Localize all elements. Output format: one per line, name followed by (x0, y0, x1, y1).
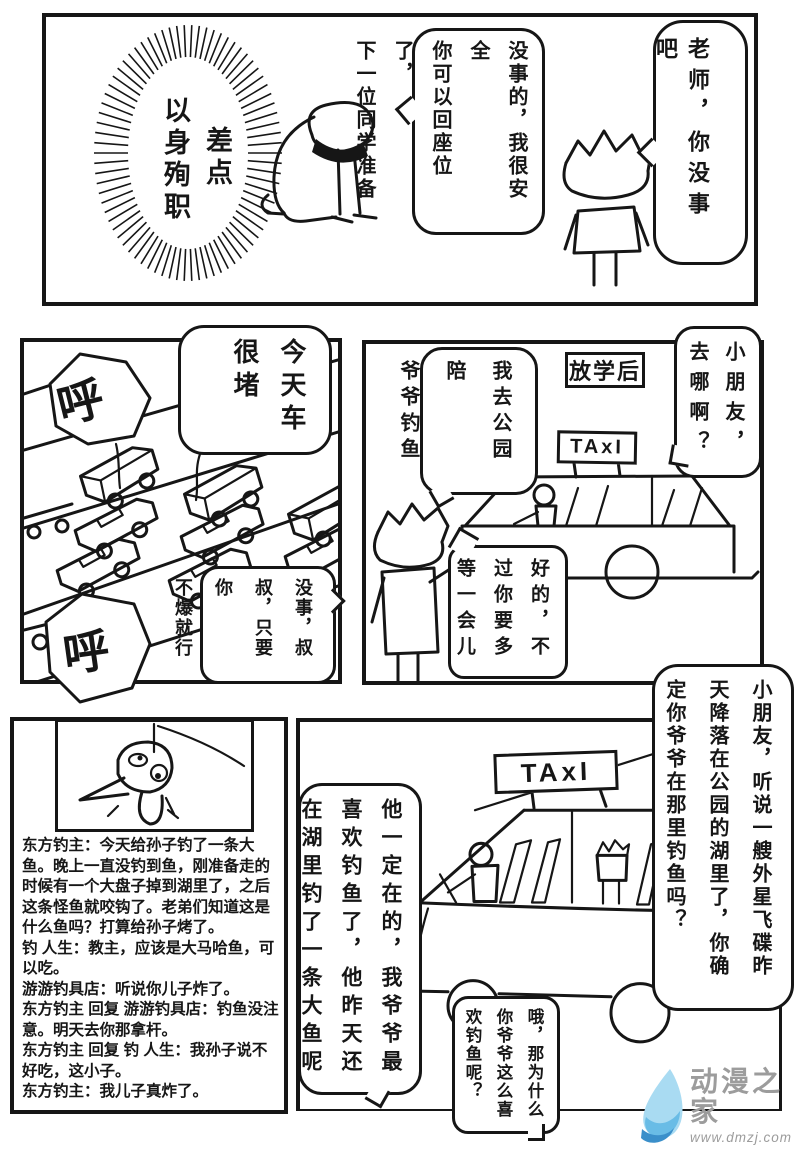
driver-why-bubble: 哦，那为什么 你爷爷这么喜 欢钓鱼呢？ (452, 996, 560, 1134)
teacher-speech-bubble: 没事的，我很安全 你可以回座位了， 下一位同学准备 (412, 28, 545, 235)
driver-alien-bubble: 小朋友，听说一艘外星飞碟昨 天降落在公园的湖里了，你确 定你爷爷在那里钓鱼吗？ (652, 664, 794, 1011)
watermark-brand: 动漫之家 (690, 1067, 796, 1127)
driver-why-bubble-tail (528, 1124, 545, 1141)
scene-caption: 放学后 (565, 352, 645, 388)
scream-sfx-text: 差点 以身殉职 (146, 96, 238, 248)
watermark-texts: 动漫之家 www.dmzj.com (690, 1067, 796, 1145)
student-speech-bubble: 老师，你没事吧 (653, 20, 748, 265)
fish-post-comments: 东方钓主：今天给孙子钓了一条大鱼。晚上一直没钓到鱼，刚准备走的时候有一个大盘子掉… (22, 836, 282, 1103)
site-watermark: 动漫之家 www.dmzj.com (636, 1064, 796, 1148)
jam-speech-bubble: 今天车 很堵 (178, 325, 332, 455)
taxi-sign: TAxI (557, 430, 638, 464)
sigh-sfx-bottom: 呼 (59, 609, 150, 703)
driver-bubble-tail (668, 444, 691, 467)
fish-drawing (58, 722, 251, 829)
driver-ok-bubble: 好的，不 过你要多 等一会儿 (448, 545, 568, 679)
watermark-url: www.dmzj.com (690, 1130, 796, 1145)
dmzj-logo-icon (636, 1067, 688, 1145)
boy-speech-bubble: 我去公园陪 爷爷钓鱼 (420, 347, 538, 495)
passenger-speech-bubble: 没事，叔 叔，只要你 不爆就行 (200, 566, 336, 684)
fish-photo (55, 719, 254, 832)
comic-page: 差点 以身殉职 没事的，我很安全 你可以回座位了， 下一位同学准备 老师，你没事… (0, 0, 800, 1151)
taxi-sign-2: TAxI (493, 750, 618, 794)
boy-reply-bubble: 他一定在的，我爷爷最 喜欢钓鱼了，他昨天还 在湖里钓了一条大鱼呢 (298, 783, 422, 1095)
